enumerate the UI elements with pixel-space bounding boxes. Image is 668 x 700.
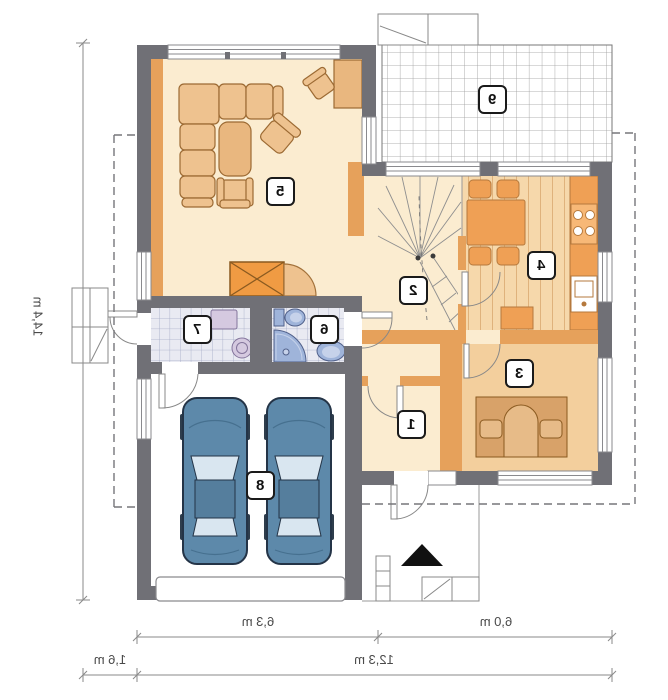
kitchen-right-window [598,252,612,302]
floor-plan-page: 5 9 4 2 7 6 1 3 8 14,4 m 6,3 m 6,0 m 12,… [0,0,668,700]
chair [497,247,519,265]
room-label-laundry: 7 [183,315,212,344]
terrace-glass-door [362,117,376,164]
stairs-terrace-window [386,162,480,176]
room-number: 2 [409,282,417,299]
room-number: 7 [193,321,201,338]
office-right-window [598,358,612,452]
room-number: 1 [407,416,415,433]
desk [334,60,362,108]
room-number: 4 [537,257,545,274]
car-left [180,398,250,564]
garage-left-window [137,379,151,439]
dim-total-height: 14,4 m [31,293,46,341]
chair [497,180,519,198]
room-number: 3 [515,365,523,382]
office-chair [504,405,538,457]
laundry-sink [232,338,252,358]
room-label-bathroom: 6 [310,315,339,344]
room-label-living: 5 [266,177,295,206]
armchair-2 [217,178,253,208]
dim-right-width: 6,0 m [466,614,526,629]
living-top-window [168,45,340,59]
living-left-window [137,252,151,300]
sofa [179,84,219,124]
chair [469,180,491,198]
room-label-hall: 2 [399,276,428,305]
porch-steps [422,577,479,601]
room-label-office: 3 [505,359,534,388]
porch-side-steps [376,556,390,601]
room-label-vestibule: 1 [397,410,426,439]
toilet [274,309,284,326]
laundry-exterior-door [108,311,137,344]
dim-garage-width: 6,3 m [228,614,288,629]
room-number: 6 [320,321,328,338]
room-label-garage: 8 [246,471,275,500]
kitchen-terrace-door [498,162,590,176]
side-entry-steps [72,288,108,363]
front-door [391,485,428,519]
entry-sidelight [428,471,456,485]
garage-door [156,577,345,601]
room-number: 5 [276,183,284,200]
stool [540,420,562,438]
porch [362,485,479,601]
terrace-steps [378,14,478,45]
room-number: 9 [488,91,496,108]
dim-total-width: 12,3 m [344,652,404,667]
stool [480,420,502,438]
dim-left-offset: 1,6 m [80,652,140,667]
stove [571,204,597,244]
entrance-arrow-icon [401,544,443,566]
chair [469,247,491,265]
room-number: 8 [256,477,264,494]
living-wall-lining [151,59,163,296]
kitchen-cabinet [501,307,533,329]
floor-plan-drawing [0,0,668,700]
office-bottom-window [498,471,592,485]
room-label-terrace: 9 [478,85,507,114]
washing-machine [211,310,237,329]
office-furniture [476,397,567,457]
coffee-table [219,122,251,176]
dining-table [467,200,525,245]
room-label-kitchen: 4 [527,251,556,280]
